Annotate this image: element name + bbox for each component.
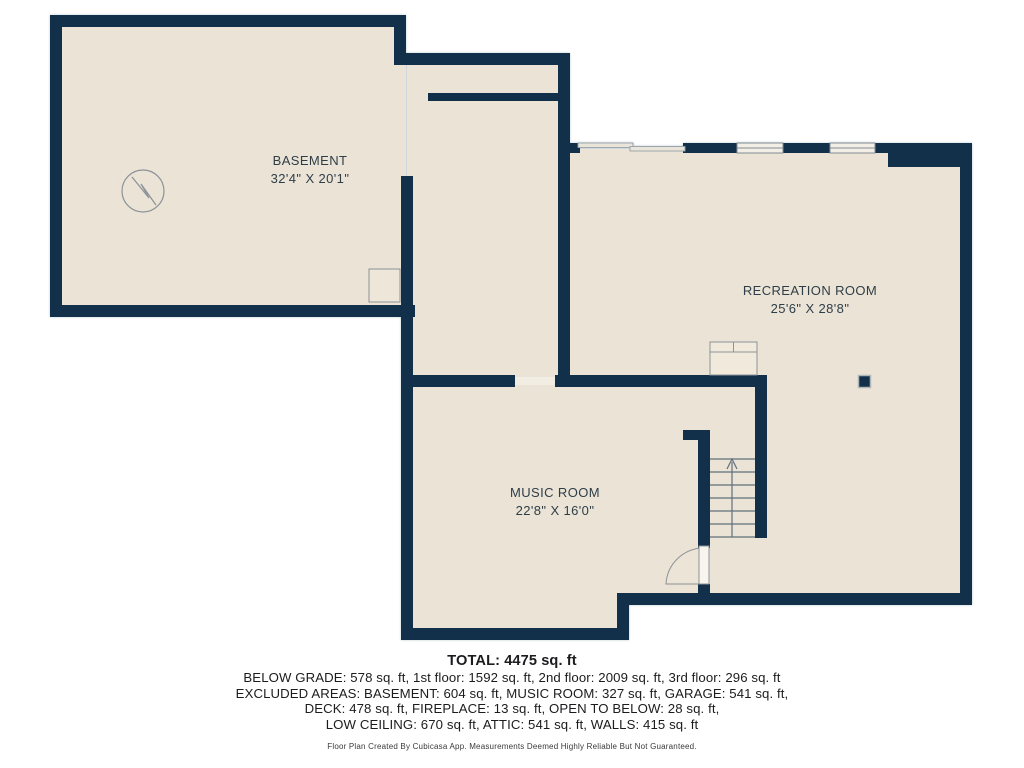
column-icon [859, 376, 871, 388]
room-dimensions: 22'8" X 16'0" [510, 502, 600, 520]
room-name: MUSIC ROOM [510, 484, 600, 502]
summary-line: DECK: 478 sq. ft, FIREPLACE: 13 sq. ft, … [0, 701, 1024, 717]
disclaimer-text: Floor Plan Created By Cubicasa App. Meas… [0, 739, 1024, 755]
wall [558, 143, 580, 153]
wall [698, 584, 710, 598]
wall [875, 143, 890, 153]
total-area: TOTAL: 4475 sq. ft [0, 652, 1024, 670]
doorway-opening [515, 377, 555, 385]
floor-areas [56, 21, 966, 634]
wall [50, 15, 406, 27]
hallway-floor [407, 59, 564, 383]
summary-line: EXCLUDED AREAS: BASEMENT: 604 sq. ft, MU… [0, 686, 1024, 702]
wall [394, 53, 570, 65]
wall [888, 143, 972, 167]
room-dimensions: 25'6" X 28'8" [743, 300, 877, 318]
wall [683, 143, 737, 153]
wall [698, 430, 710, 548]
wall [960, 143, 972, 605]
sliding-door-rail [630, 147, 685, 152]
cabinet-icon [710, 342, 757, 375]
basement-floor [56, 21, 406, 311]
summary-line: BELOW GRADE: 578 sq. ft, 1st floor: 1592… [0, 670, 1024, 686]
room-name: BASEMENT [271, 152, 350, 170]
wall [50, 15, 62, 317]
area-summary: TOTAL: 4475 sq. ft BELOW GRADE: 578 sq. … [0, 652, 1024, 755]
wall [401, 176, 413, 640]
wall [408, 375, 515, 387]
wall [617, 593, 972, 605]
wall [755, 375, 767, 538]
chimney-box-icon [369, 269, 400, 302]
room-name: RECREATION ROOM [743, 282, 877, 300]
room-label-basement: BASEMENT 32'4" X 20'1" [271, 152, 350, 188]
sliding-door-rail [578, 143, 633, 148]
wall [401, 628, 629, 640]
wall [428, 93, 562, 101]
room-label-recreation-room: RECREATION ROOM 25'6" X 28'8" [743, 282, 877, 318]
door-leaf [699, 546, 709, 584]
wall [783, 143, 830, 153]
wall [50, 305, 415, 317]
wall [555, 375, 767, 387]
floor-plan: BASEMENT 32'4" X 20'1" RECREATION ROOM 2… [0, 0, 1024, 768]
wall [558, 65, 570, 383]
room-dimensions: 32'4" X 20'1" [271, 170, 350, 188]
room-label-music-room: MUSIC ROOM 22'8" X 16'0" [510, 484, 600, 520]
summary-line: LOW CEILING: 670 sq. ft, ATTIC: 541 sq. … [0, 717, 1024, 733]
